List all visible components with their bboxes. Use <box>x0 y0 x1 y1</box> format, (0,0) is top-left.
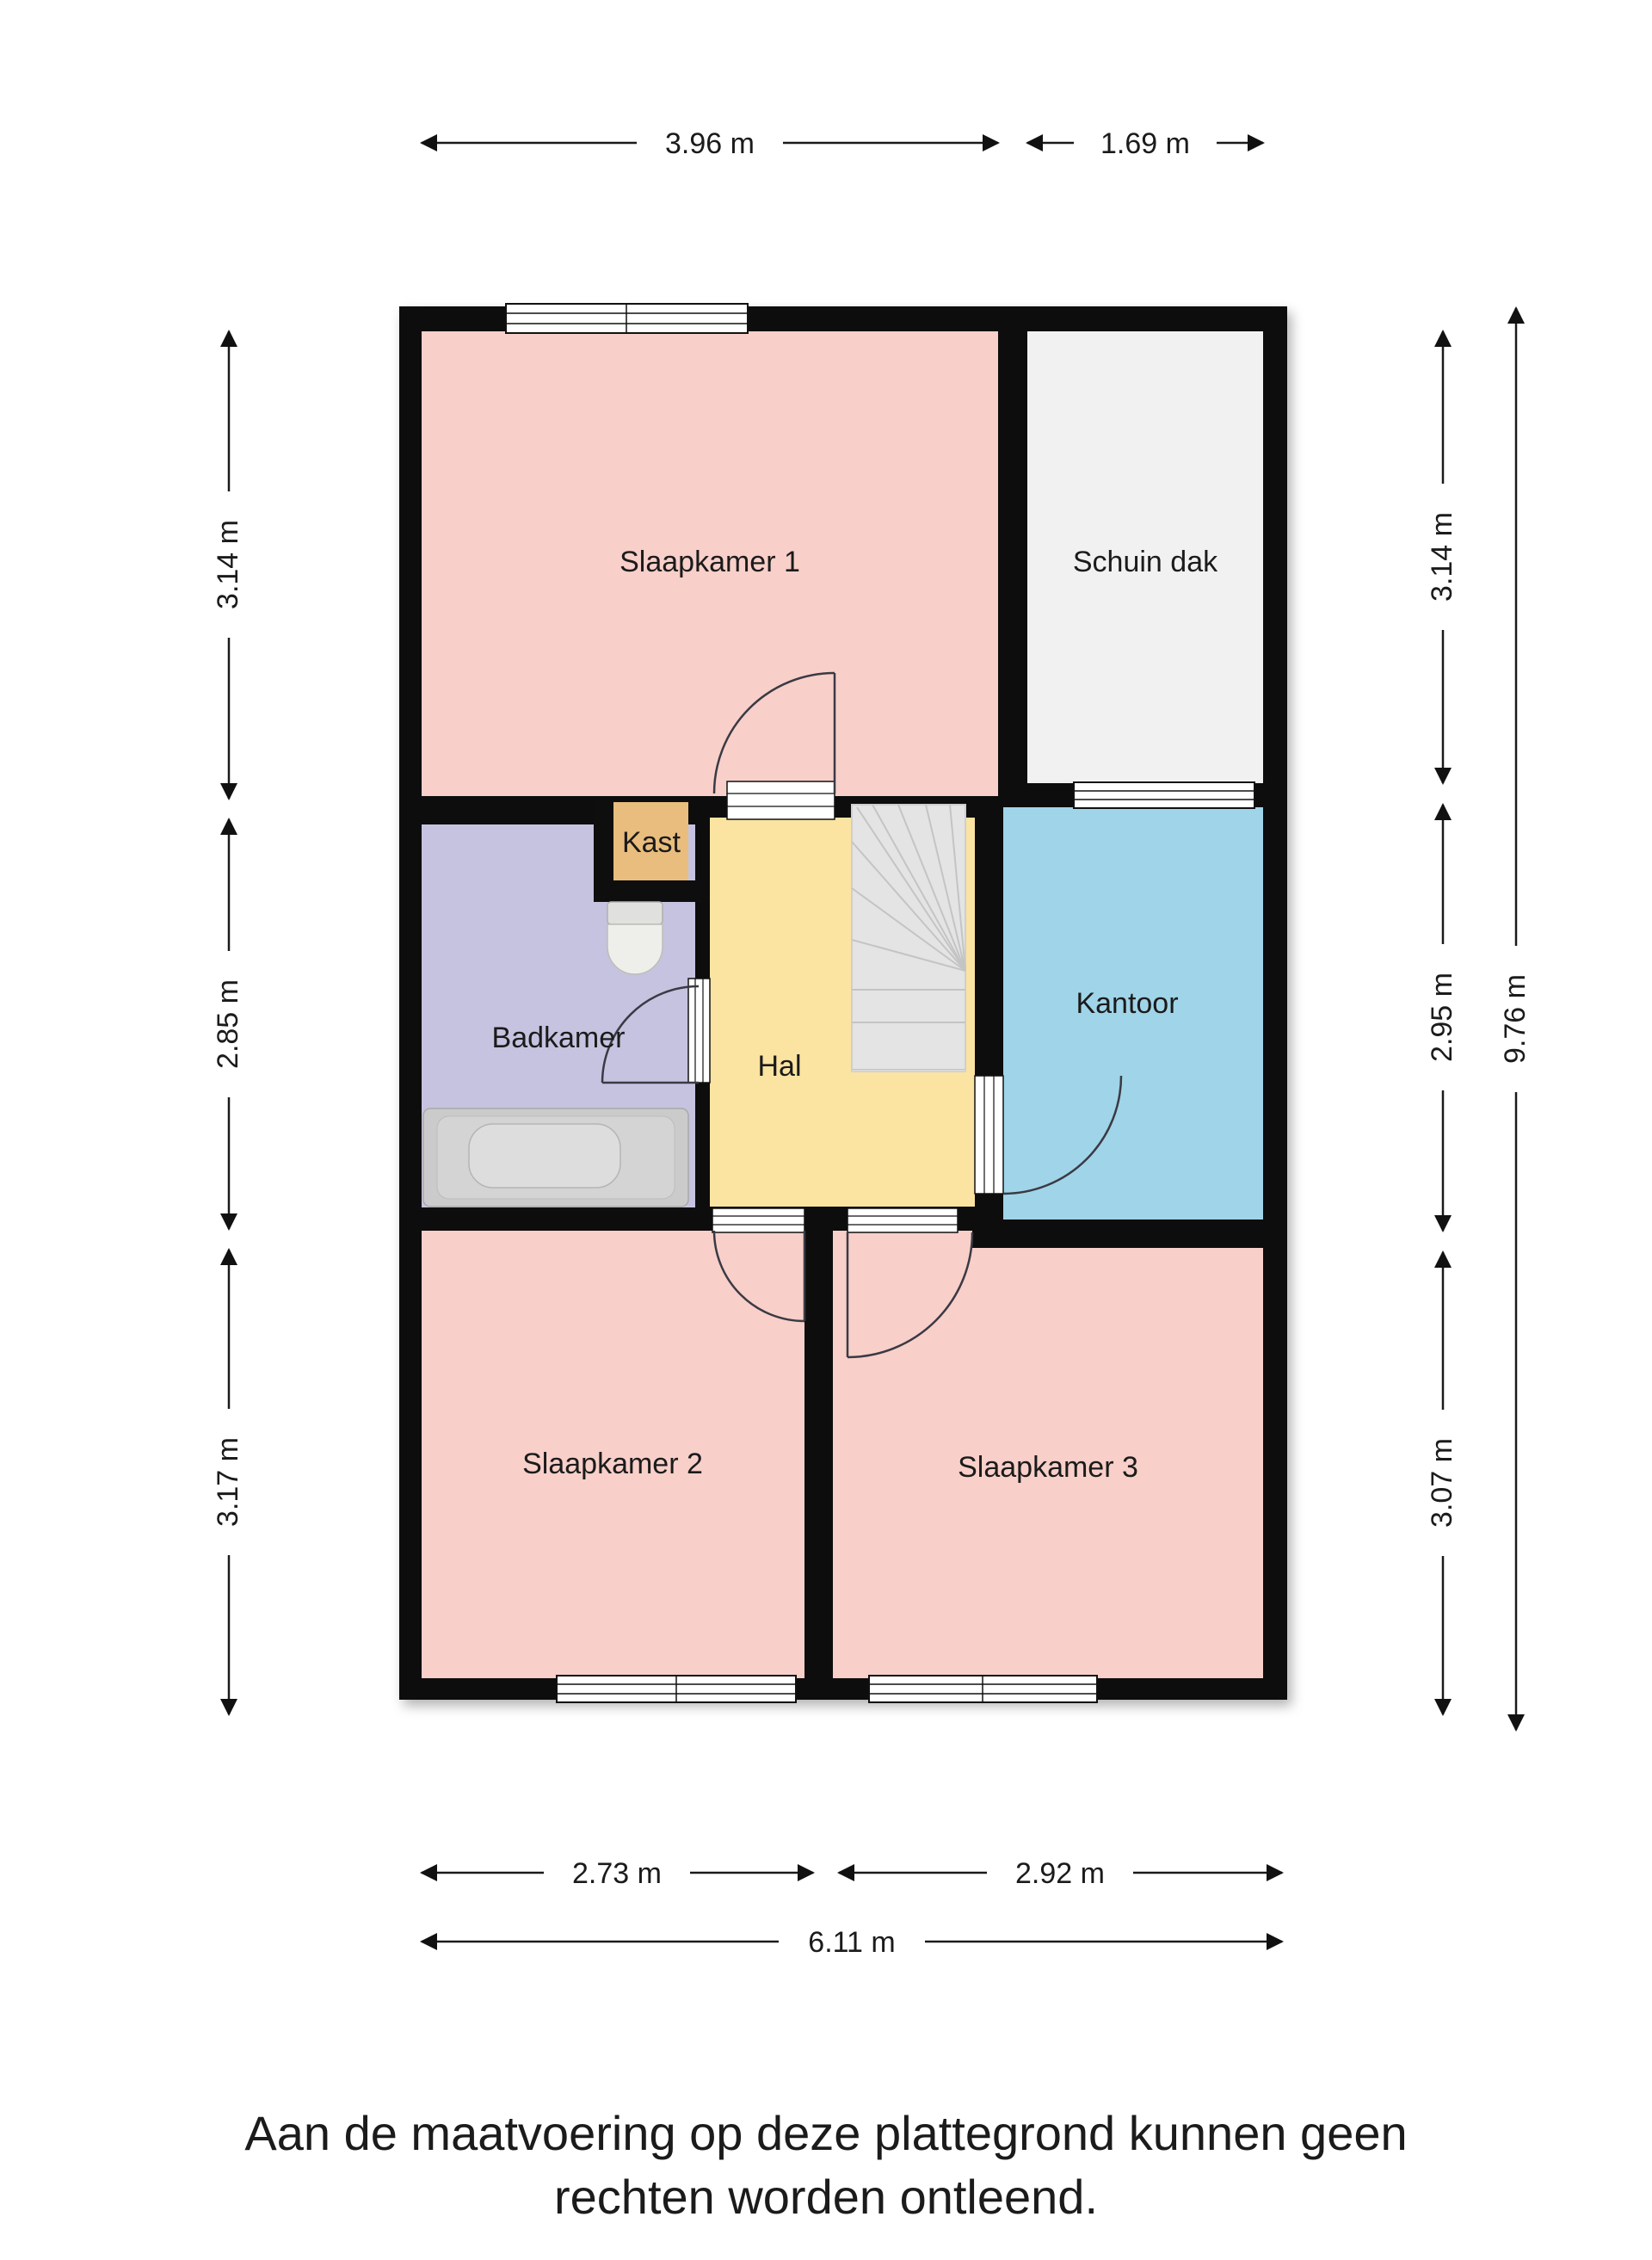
dim-bottom-left-value: 2.73 m <box>572 1857 662 1890</box>
window-schuin-dak <box>1074 782 1254 808</box>
dim-top-left-value: 3.96 m <box>665 127 755 160</box>
door-jamb-slaapkamer1 <box>727 781 835 819</box>
dimension-bottom-total: 6.11 m <box>422 1926 1282 1959</box>
dim-left-3-value: 3.17 m <box>212 1437 244 1527</box>
dimension-top-left: 3.96 m <box>422 127 998 160</box>
dimension-bottom-right: 2.92 m <box>839 1857 1282 1890</box>
dim-top-right-value: 1.69 m <box>1100 127 1190 160</box>
label-kantoor: Kantoor <box>1076 987 1178 1020</box>
staircase <box>852 805 965 1071</box>
disclaimer-line-1: Aan de maatvoering op deze plattegrond k… <box>244 2106 1407 2160</box>
dim-right-3-value: 3.07 m <box>1426 1438 1458 1528</box>
dim-left-2-value: 2.85 m <box>212 979 244 1069</box>
label-slaapkamer-1: Slaapkamer 1 <box>619 546 800 578</box>
label-slaapkamer-3: Slaapkamer 3 <box>958 1451 1138 1484</box>
label-schuin-dak: Schuin dak <box>1073 546 1218 578</box>
door-jamb-badkamer <box>688 979 710 1083</box>
toilet <box>607 902 663 974</box>
dimension-left-3: 3.17 m <box>212 1250 244 1714</box>
window-slaapkamer2-bottom <box>557 1676 796 1702</box>
dimension-right-3: 3.07 m <box>1426 1252 1458 1714</box>
dimension-right-1: 3.14 m <box>1426 331 1458 783</box>
label-hal: Hal <box>757 1050 801 1083</box>
door-jamb-kantoor <box>975 1076 1003 1194</box>
dimension-left-1: 3.14 m <box>212 331 244 799</box>
dimension-right-2: 2.95 m <box>1426 805 1458 1231</box>
floor-plan: Slaapkamer 1 Schuin dak Kast Badkamer Ha… <box>0 0 1652 2260</box>
bathtub <box>423 1108 688 1207</box>
dim-bottom-total-value: 6.11 m <box>808 1926 895 1959</box>
dim-right-1-value: 3.14 m <box>1426 512 1458 602</box>
label-badkamer: Badkamer <box>492 1022 626 1054</box>
door-jamb-slaapkamer3 <box>848 1208 958 1232</box>
label-slaapkamer-2: Slaapkamer 2 <box>522 1448 703 1480</box>
dimension-bottom-left: 2.73 m <box>422 1857 813 1890</box>
dimension-left-2: 2.85 m <box>212 819 244 1229</box>
dim-bottom-right-value: 2.92 m <box>1015 1857 1105 1890</box>
dimension-top-right: 1.69 m <box>1027 127 1263 160</box>
dim-right-2-value: 2.95 m <box>1426 973 1458 1062</box>
label-kast: Kast <box>622 826 681 859</box>
room-slaapkamer-3-door-strip <box>833 1231 972 1252</box>
floor-plan-page: Slaapkamer 1 Schuin dak Kast Badkamer Ha… <box>0 0 1652 2260</box>
dim-right-total-value: 9.76 m <box>1499 974 1532 1064</box>
window-slaapkamer1-top <box>506 304 748 333</box>
disclaimer-line-2: rechten worden ontleend. <box>554 2170 1098 2224</box>
dim-left-1-value: 3.14 m <box>212 520 244 609</box>
kast-bottom-wall <box>594 880 710 902</box>
door-jamb-slaapkamer2 <box>712 1208 804 1232</box>
dimension-right-total: 9.76 m <box>1499 308 1532 1730</box>
window-slaapkamer3-bottom <box>869 1676 1097 1702</box>
